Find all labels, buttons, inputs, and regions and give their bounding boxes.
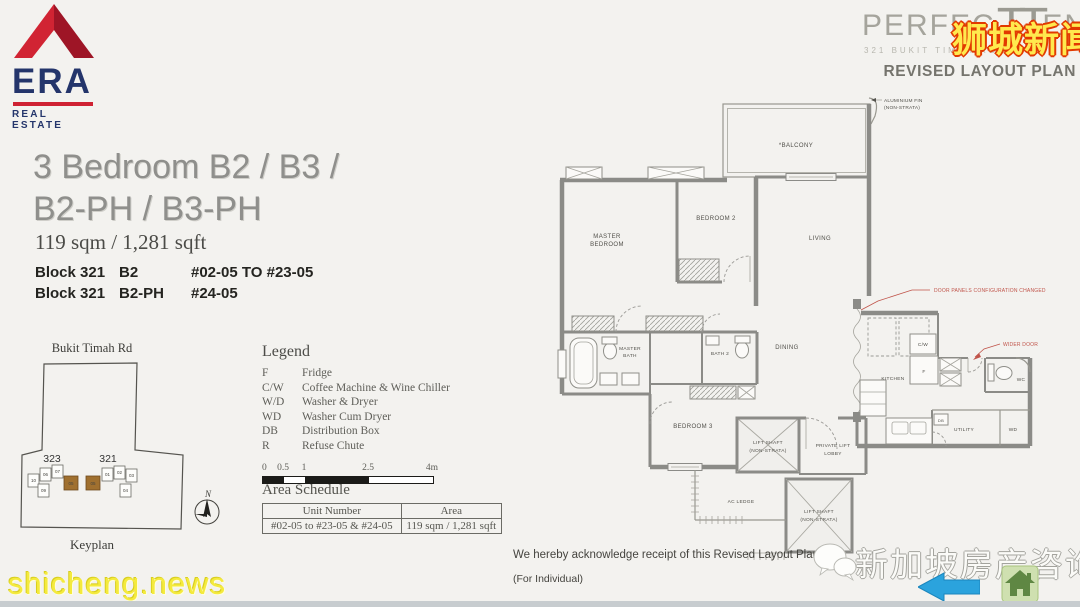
unit-number: 05	[68, 481, 74, 486]
block-name: Block 321	[35, 285, 119, 306]
era-logo-name: ERA	[12, 65, 102, 99]
unit-number: 06	[43, 472, 49, 477]
layout-plan-page: ERA REAL ESTATE PERFEC TT EN 321 BUKIT T…	[0, 0, 1080, 607]
balcony-label: *BALCONY	[779, 143, 813, 149]
era-logo-tagline: REAL ESTATE	[12, 109, 102, 131]
unit-area-text: 119 sqm / 1,281 sqft	[35, 230, 206, 255]
scale-tick: 4m	[426, 463, 438, 473]
era-roof-icon	[12, 0, 96, 58]
area-schedule: Area Schedule Unit Number Area #02-05 to…	[262, 482, 504, 534]
aluminium-fin-label: (NON-STRATA)	[884, 105, 920, 111]
wechat-icon	[812, 542, 858, 582]
watermark-top-right: 狮城新闻	[952, 12, 1080, 63]
block-name: Block 321	[35, 264, 119, 285]
block-unit-list: Block 321 B2 #02-05 TO #23-05 Block 321 …	[35, 264, 313, 306]
legend-item: W/DWasher & Dryer	[262, 395, 502, 410]
block-row: Block 321 B2-PH #24-05	[35, 285, 313, 306]
legend-desc: Washer & Dryer	[302, 395, 502, 410]
col-header-unit: Unit Number	[263, 504, 402, 519]
unit-number: 01	[105, 472, 111, 477]
unit-range: #02-05 TO #23-05	[191, 264, 313, 285]
bath2-label: BATH 2	[711, 351, 729, 357]
scale-tick: 1	[302, 463, 307, 473]
private-lift-lobby-label: PRIVATE LIFT	[816, 443, 851, 449]
scale-tick: 2.5	[362, 463, 374, 473]
unit-number: 05	[90, 481, 96, 486]
bottom-strip	[0, 601, 1080, 607]
legend: Legend FFridge C/WCoffee Machine & Wine …	[262, 343, 502, 489]
unit-range: #24-05	[191, 285, 313, 306]
unit-number: 10	[31, 478, 37, 483]
coffee-wine-label: C/W	[918, 342, 928, 348]
ac-ledge-label: AC LEDGE	[728, 499, 755, 505]
unit-number: 03	[129, 473, 135, 478]
plan-type-heading: REVISED LAYOUT PLAN	[862, 63, 1076, 81]
legend-desc: Distribution Box	[302, 424, 502, 439]
page-title-line2: B2-PH / B3-PH	[33, 188, 339, 230]
acknowledgment-line1: We hereby acknowledge receipt of this Re…	[513, 549, 822, 561]
legend-item: WDWasher Cum Dryer	[262, 410, 502, 425]
unit-number: 04	[123, 488, 129, 493]
area-schedule-table: Unit Number Area #02-05 to #23-05 & #24-…	[262, 503, 502, 534]
unit-number: 02	[117, 470, 123, 475]
unit-number: 09	[41, 488, 47, 493]
building-323-label: 323	[43, 453, 61, 465]
fridge-label: F	[922, 369, 925, 375]
page-title-line1: 3 Bedroom B2 / B3 /	[33, 146, 339, 188]
building-321-label: 321	[99, 453, 117, 465]
legend-item: C/WCoffee Machine & Wine Chiller	[262, 381, 502, 396]
watermark-bottom-left: shicheng.news	[8, 566, 226, 602]
kitchen-label: KITCHEN	[881, 376, 904, 382]
table-row: #02-05 to #23-05 & #24-05 119 sqm / 1,28…	[263, 519, 502, 534]
compass-n-label: N	[204, 489, 212, 499]
wider-door-annotation: WIDER DOOR	[1003, 342, 1038, 348]
area-schedule-title: Area Schedule	[262, 482, 504, 499]
aluminium-fin-label: ALUMINIUM FIN	[884, 98, 923, 104]
keyplan-building-321: 321 05 01 02 03 04	[86, 453, 137, 497]
unit-type: B2-PH	[119, 285, 191, 306]
dining-label: DINING	[775, 345, 798, 351]
page-title: 3 Bedroom B2 / B3 / B2-PH / B3-PH	[33, 146, 339, 230]
block-row: Block 321 B2 #02-05 TO #23-05	[35, 264, 313, 285]
era-logo: ERA REAL ESTATE	[12, 0, 102, 131]
lift-shaft2-label: (NON-STRATA)	[800, 517, 837, 523]
legend-desc: Refuse Chute	[302, 439, 502, 454]
wc-label: WC	[1017, 377, 1026, 383]
legend-desc: Coffee Machine & Wine Chiller	[302, 381, 502, 396]
bedroom3-label: BEDROOM 3	[673, 424, 713, 430]
db-label: DB	[938, 418, 944, 423]
acknowledgment-line2: (For Individual)	[513, 573, 583, 585]
compass-icon: N	[195, 489, 219, 524]
keyplan-caption: Keyplan	[70, 537, 115, 552]
keyplan-road-label: Bukit Timah Rd	[52, 341, 133, 355]
utility-label: UTILITY	[954, 427, 974, 433]
master-bath-label: BATH	[623, 353, 637, 359]
door-panels-annotation: DOOR PANELS CONFIGURATION CHANGED	[934, 288, 1046, 294]
legend-desc: Fridge	[302, 366, 502, 381]
lift-shaft1-label: LIFT SHAFT	[753, 440, 783, 446]
legend-abbr: DB	[262, 424, 302, 439]
legend-abbr: C/W	[262, 381, 302, 396]
home-icon	[1001, 565, 1039, 603]
keyplan-site-outline	[21, 363, 183, 529]
living-label: LIVING	[809, 236, 831, 242]
keyplan-drawing: Bukit Timah Rd 323 10 06 07 09 05 321	[20, 338, 235, 558]
keyplan-building-323: 323 10 06 07 09 05	[28, 453, 78, 497]
back-arrow-icon	[918, 572, 980, 602]
unit-type: B2	[119, 264, 191, 285]
legend-abbr: R	[262, 439, 302, 454]
cell-unit-number: #02-05 to #23-05 & #24-05	[263, 519, 402, 534]
unit-number: 07	[55, 469, 61, 474]
legend-abbr: F	[262, 366, 302, 381]
private-lift-lobby-label: LOBBY	[824, 451, 842, 457]
lift-shaft1-label: (NON-STRATA)	[749, 448, 786, 454]
legend-desc: Washer Cum Dryer	[302, 410, 502, 425]
legend-item: DBDistribution Box	[262, 424, 502, 439]
scale-tick: 0.5	[277, 463, 289, 473]
master-bedroom-label: BEDROOM	[590, 242, 624, 248]
legend-item: RRefuse Chute	[262, 439, 502, 454]
legend-abbr: WD	[262, 410, 302, 425]
era-logo-bar	[13, 102, 93, 106]
scale-tick: 0	[262, 463, 267, 473]
floor-plan-drawing: *BALCONY MASTER BEDROOM BEDROOM 2 LIVING…	[478, 92, 1080, 562]
washer-dryer-label: WD	[1009, 427, 1018, 433]
legend-item: FFridge	[262, 366, 502, 381]
legend-title: Legend	[262, 343, 502, 361]
legend-abbr: W/D	[262, 395, 302, 410]
master-bedroom-label: MASTER	[593, 234, 621, 240]
bedroom2-label: BEDROOM 2	[696, 216, 736, 222]
master-bath-label: MASTER	[619, 346, 641, 352]
lift-shaft2-label: LIFT SHAFT	[804, 509, 834, 515]
